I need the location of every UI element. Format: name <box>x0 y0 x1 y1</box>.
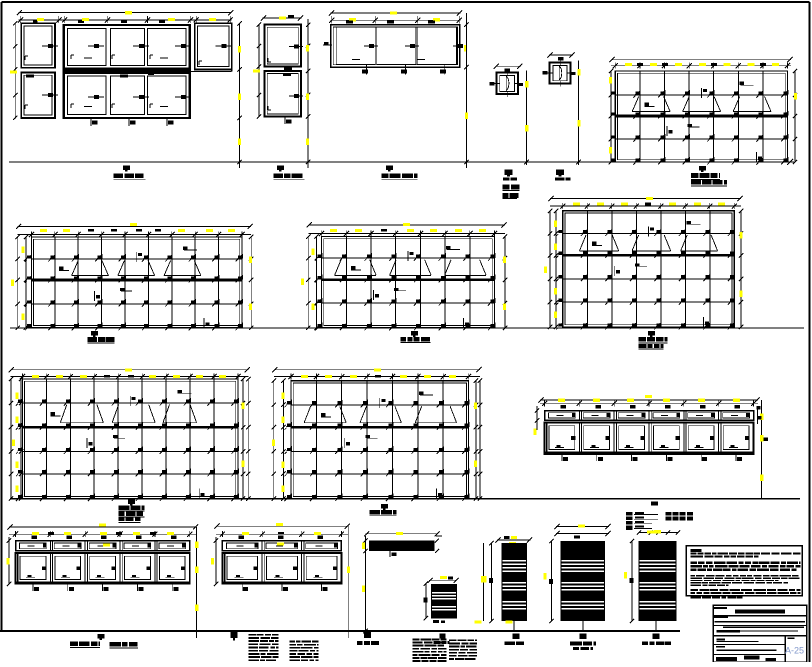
svg-text:A-25: A-25 <box>785 646 804 656</box>
